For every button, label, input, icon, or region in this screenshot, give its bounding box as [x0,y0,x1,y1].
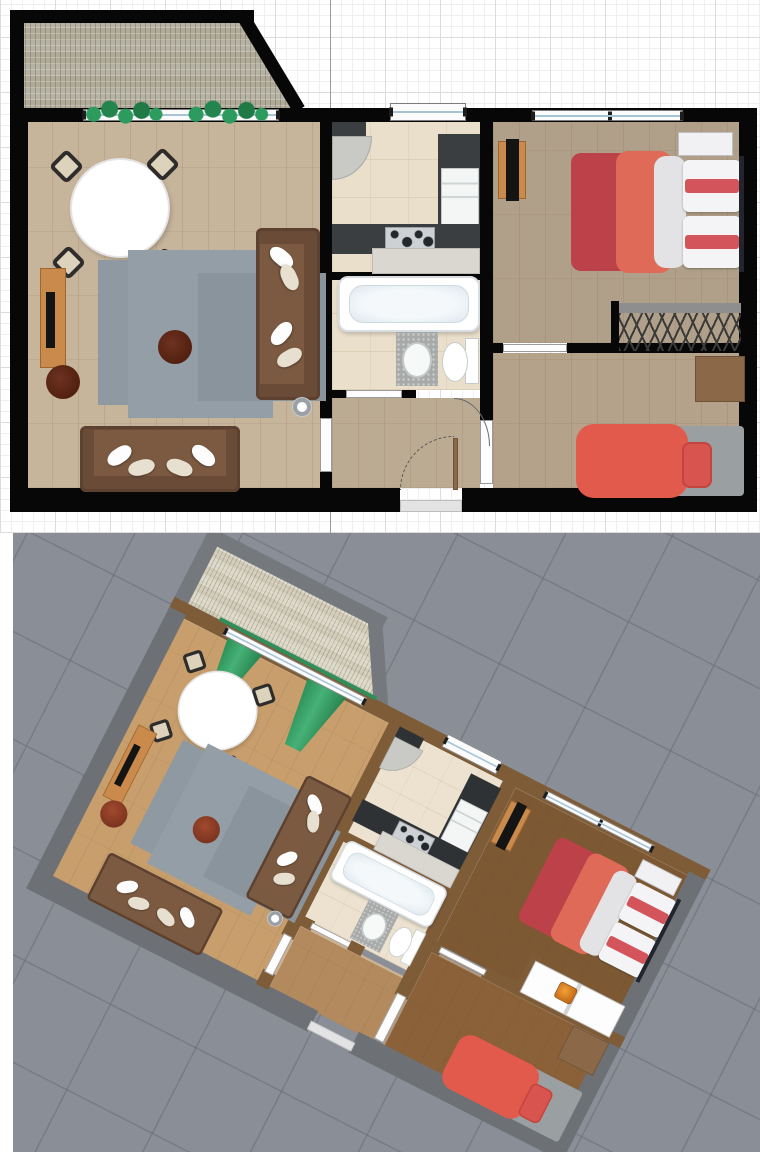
window-tick [389,108,393,117]
terrace-wall-top [10,10,254,23]
kids-desk[interactable] [695,356,745,402]
window-tick [276,111,280,120]
entrance-step [400,500,462,512]
bedroom-tv[interactable] [506,139,519,201]
wall-west [10,122,28,488]
door-bath-hall[interactable] [346,390,402,398]
bedroom-shelf[interactable] [678,132,733,156]
tv[interactable] [46,292,55,348]
window-plant-right[interactable] [186,100,270,126]
door-bedroom-kidsroom[interactable] [503,344,567,352]
single-bed-duvet[interactable] [576,424,688,498]
kitchen-window[interactable] [390,103,466,121]
wall-living-hall-stub [320,472,332,488]
fridge[interactable] [441,168,479,226]
floor-lamp[interactable] [293,398,311,416]
toilet-bowl[interactable] [442,342,468,382]
sofa-bottom[interactable] [80,426,240,492]
sink-bowl [402,342,432,378]
bed-headboard [739,156,744,272]
terrace-wall-left [10,10,24,112]
bed-pillow[interactable] [683,216,741,268]
dining-table[interactable] [72,160,168,256]
apartment-plan[interactable] [28,533,744,1152]
rotated-ground [13,533,760,1152]
window-tick [597,818,603,826]
window-tick [608,111,612,120]
window-tick [531,111,535,120]
wall-bath-hall-a [332,390,346,398]
bathtub[interactable] [338,276,480,332]
round-pouf[interactable] [46,365,80,399]
single-bed-pillow[interactable] [682,442,712,488]
bed-pillow[interactable] [683,160,741,212]
stove[interactable] [385,227,435,249]
double-bed-sheet [654,156,686,268]
bathtub-basin [349,285,469,323]
apartment-plan[interactable] [10,8,757,512]
wall-bedrooms-a [493,343,503,353]
render-scene[interactable] [13,533,760,1152]
wardrobe-hangers[interactable] [619,313,741,351]
window-tick [680,111,684,120]
plan-2d-slot [0,0,760,533]
plan-3d-slot [13,533,760,1152]
window-plant-left[interactable] [84,100,164,126]
wall-kitchen-bedroom [480,122,493,420]
bedroom-window[interactable] [532,110,683,121]
sofa-pillow[interactable] [273,872,295,885]
kitchen-worktop[interactable] [372,248,480,274]
wall-bath-hall-b [402,390,416,398]
wardrobe-shelf[interactable] [619,303,741,313]
plan-2d-view[interactable] [0,0,760,533]
floorplan-canvas[interactable] [0,0,760,1152]
wardrobe-stub-wall [611,301,619,353]
door-living-hall[interactable] [320,418,332,472]
plan-3d-view[interactable] [0,533,760,1152]
sofa-pillow[interactable] [306,810,319,832]
round-pouf[interactable] [158,330,192,364]
window-tick [463,108,467,117]
